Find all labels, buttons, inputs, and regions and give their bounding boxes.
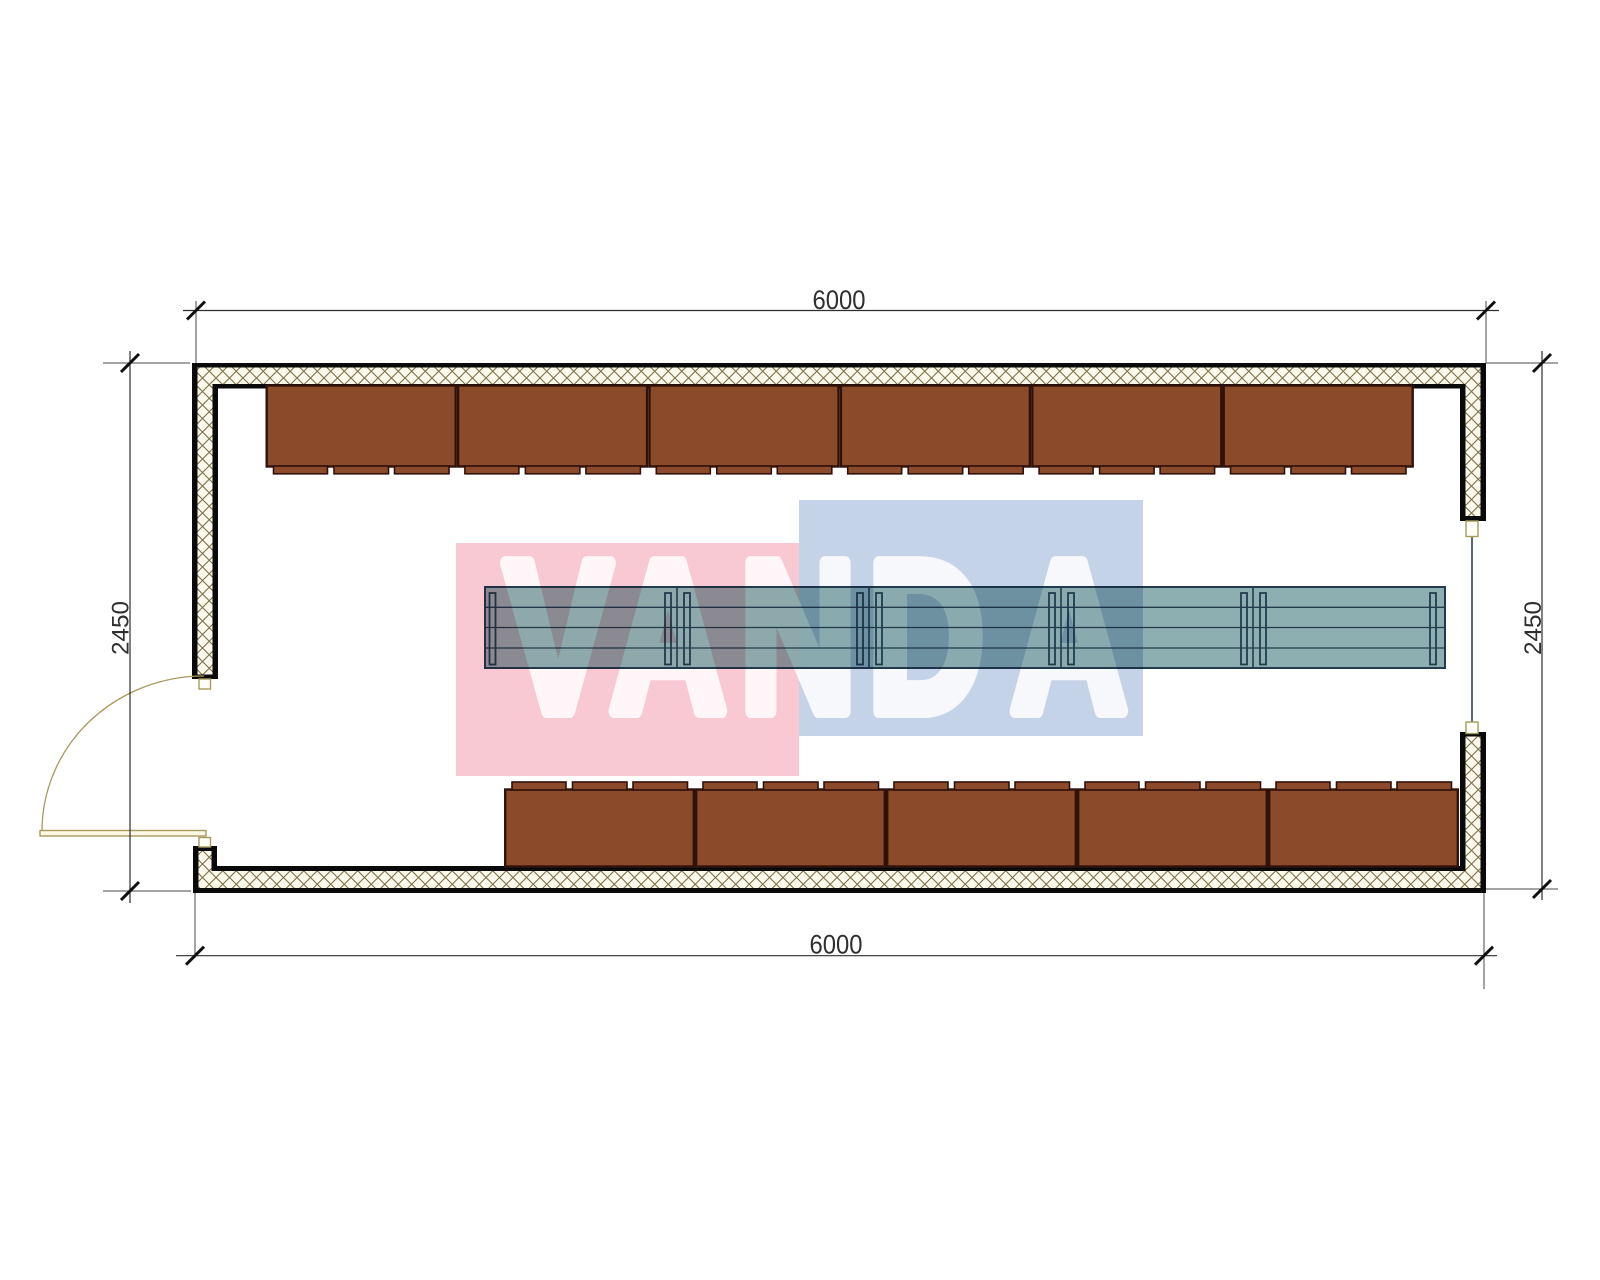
svg-text:2450: 2450 <box>1520 601 1547 655</box>
svg-text:6000: 6000 <box>810 930 863 960</box>
svg-text:2450: 2450 <box>108 601 135 655</box>
svg-text:6000: 6000 <box>813 285 866 315</box>
